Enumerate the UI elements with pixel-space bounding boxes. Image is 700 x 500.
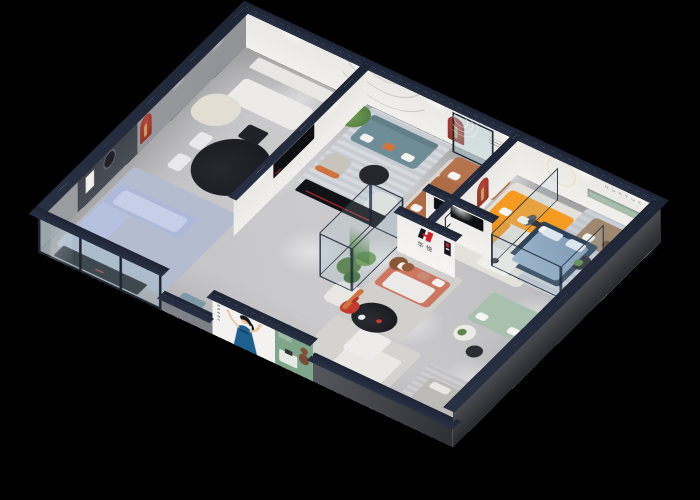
niche-figurine (144, 123, 147, 138)
small-display-sign (444, 240, 451, 256)
niche-figurine (481, 187, 484, 202)
dining-chair (166, 152, 193, 172)
floor: HUAYUE华悦 (38, 47, 660, 447)
showroom-render: HUAYUE华悦 (0, 0, 700, 500)
